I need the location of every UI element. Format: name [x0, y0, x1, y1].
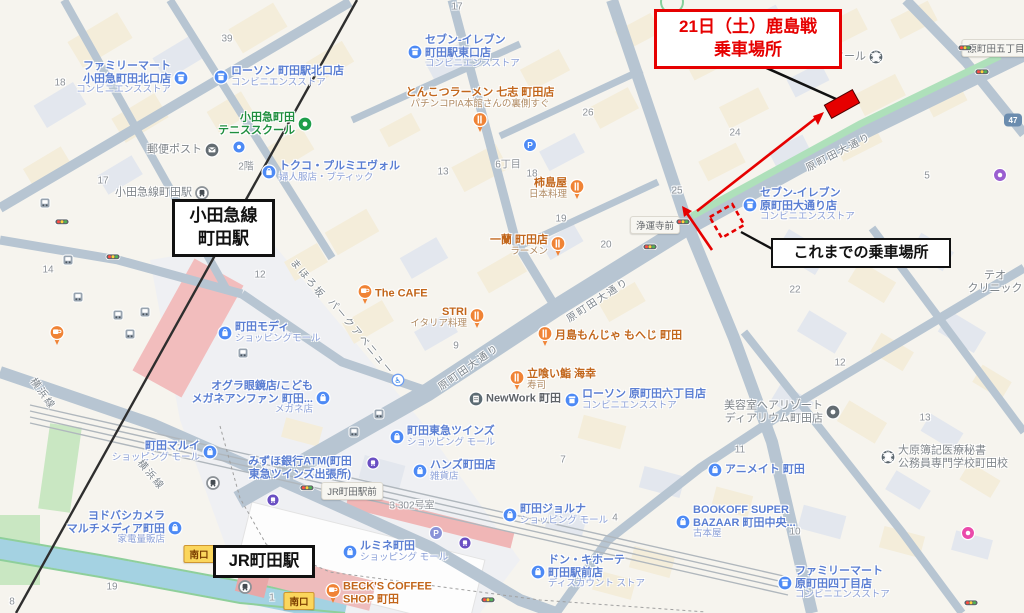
- shopping-icon: [202, 444, 218, 460]
- poi-animate-machida[interactable]: アニメイト 町田: [725, 464, 805, 477]
- poi-seveneleven-haramachida[interactable]: セブン-イレブン原町田大通り店コンビニエンスストア: [760, 187, 855, 223]
- svg-text:文: 文: [884, 452, 893, 462]
- block-number: 4: [612, 513, 618, 524]
- convenience-store-icon: [564, 392, 580, 408]
- convenience-store-icon: [213, 69, 229, 85]
- poi-mizuho-atm[interactable]: みずほ銀行ATM(町田東急ツインズ出張所): [248, 455, 352, 480]
- convenience-store-icon: [407, 44, 423, 60]
- traffic-light-icon: [643, 243, 658, 251]
- block-number: 19: [555, 214, 566, 225]
- traffic-light-icon: [106, 253, 121, 261]
- svg-text:P: P: [527, 140, 533, 150]
- poi-familymart-haramachida4[interactable]: ファミリーマート原町田四丁目店コンビニエンスストア: [795, 565, 890, 601]
- poi-machida-modi[interactable]: 町田モディショッピングモール: [235, 321, 321, 345]
- svg-text:47: 47: [1009, 116, 1018, 125]
- school-icon: 文: [868, 49, 884, 65]
- convenience-store-icon: [742, 197, 758, 213]
- odakyu-line1: 小田急線: [175, 205, 272, 228]
- new-pickup-callout: 21日（土）鹿島戦 乗車場所: [654, 9, 842, 69]
- poi-machida-marui[interactable]: 町田マルイショッピング モール: [112, 440, 200, 464]
- cafe-pin-icon: [324, 582, 342, 604]
- food-pin-icon: [508, 369, 526, 391]
- post-icon: [204, 142, 220, 158]
- shopping-icon: [342, 544, 358, 560]
- parking-icon: P: [523, 138, 538, 153]
- poi-tokyu-twins[interactable]: 町田東急ツインズショッピング モール: [407, 425, 495, 449]
- poi-familymart-odakyu-kitaguchi[interactable]: ファミリーマート小田急町田北口店コンビニエンスストア: [76, 60, 171, 96]
- traffic-light-icon: [964, 599, 979, 607]
- poi-ogura-megane[interactable]: オグラ眼鏡店/こどもメガネアンファン 町田...メガネ店: [192, 380, 313, 416]
- cafe-pin-icon: [356, 283, 374, 305]
- poi-tokuko-premier-vol[interactable]: トクコ・プルミエヴォル婦人服店・ブティック: [279, 160, 400, 184]
- block-number: 19: [106, 582, 117, 593]
- shopping-icon: [261, 164, 277, 180]
- cafe-pin-icon: [48, 324, 66, 346]
- block-number: 39: [221, 34, 232, 45]
- shopping-icon: [389, 429, 405, 445]
- shopping-icon: [530, 564, 546, 580]
- wheelchair-access-icon: ♿: [391, 373, 405, 387]
- bus-stop-icon: [125, 329, 136, 340]
- railway-line-icon: [366, 456, 380, 470]
- street-name-label: パークアベニュー: [325, 294, 398, 377]
- street-name-label: 横浜線: [28, 374, 61, 412]
- bus-stop-icon: [140, 307, 151, 318]
- new-pickup-line2: 乗車場所: [659, 39, 837, 62]
- road-label-chip: 浄運寺前: [630, 216, 680, 234]
- block-number: 1: [269, 593, 275, 604]
- map[interactable]: ファミリーマート小田急町田北口店コンビニエンスストアローソン 町田駅北口店コンビ…: [0, 0, 1024, 613]
- poi-tonkotsu-nanashi[interactable]: とんこつラーメン 七志 町田店パチンコPIA本館さんの裏側すぐ: [406, 86, 555, 110]
- poi-lumine-machida[interactable]: ルミネ町田ショッピング モール: [360, 540, 448, 564]
- new-pickup-line1: 21日（土）鹿島戦: [659, 16, 837, 39]
- poi-newwork-machida[interactable]: NewWork 町田: [486, 393, 561, 406]
- shopping-icon: [217, 325, 233, 341]
- convenience-store-icon: [777, 575, 793, 591]
- shopping-icon: [502, 507, 518, 523]
- odakyu-line2: 町田駅: [175, 228, 272, 251]
- poi-teo-clinic[interactable]: テオクリニック: [968, 269, 1023, 294]
- poi-seveneleven-higashiguchi[interactable]: セブン-イレブン町田駅東口店コンビニエンスストア: [425, 34, 520, 70]
- shopping-icon: [315, 390, 331, 406]
- poi-don-quijote[interactable]: ドン・キホーテ町田駅前店ディスカウント ストア: [548, 554, 645, 590]
- poi-kakishimaya[interactable]: 柿島屋日本料理: [529, 177, 567, 201]
- school-icon: 文: [880, 449, 896, 465]
- bus-stop-icon: [374, 409, 385, 420]
- svg-text:♿: ♿: [394, 376, 401, 385]
- block-number: 10: [789, 527, 800, 538]
- food-pin-icon: [568, 178, 586, 200]
- block-number: 14: [42, 265, 53, 276]
- poi-stri[interactable]: STRIイタリア料理: [410, 306, 467, 330]
- svg-text:文: 文: [872, 52, 881, 62]
- poi-tsukishima-monja-moheji[interactable]: 月島もんじゃ もへじ 町田: [555, 330, 682, 343]
- block-number: 2階: [238, 158, 254, 173]
- block-number: 3 302号室: [389, 497, 434, 512]
- odakyu-station-callout: 小田急線 町田駅: [172, 199, 275, 257]
- railway-line-icon: [458, 536, 472, 550]
- block-number: 8: [9, 597, 15, 608]
- traffic-light-icon: [975, 68, 990, 76]
- block-number: 20: [600, 240, 611, 251]
- bus-stop-icon: [349, 427, 360, 438]
- street-name-label: まほろ坂: [288, 255, 330, 301]
- poi-layer: ファミリーマート小田急町田北口店コンビニエンスストアローソン 町田駅北口店コンビ…: [0, 0, 1024, 613]
- poi-machida-jorna[interactable]: 町田ジョルナショッピング モール: [520, 503, 608, 527]
- poi-lawson-haramachida6[interactable]: ローソン 原町田六丁目店コンビニエンスストア: [582, 388, 706, 412]
- shopping-icon: [707, 462, 723, 478]
- station-icon: [238, 580, 253, 595]
- scissors-icon: [825, 404, 841, 420]
- bus-stop-icon: [63, 255, 74, 266]
- traffic-light-icon: [55, 218, 70, 226]
- jr-station-callout: JR町田駅: [213, 545, 315, 578]
- food-pin-icon: [468, 307, 486, 329]
- food-pin-icon: [549, 235, 567, 257]
- block-number: 12: [834, 358, 845, 369]
- block-number: 24: [729, 128, 740, 139]
- beauty-shop-icon: [961, 526, 976, 541]
- blue-dot-icon: [232, 140, 246, 154]
- bus-stop-icon: [40, 198, 51, 209]
- block-number: 22: [789, 285, 800, 296]
- street-name-label: 原町田大通り: [803, 128, 874, 174]
- block-number: 13: [919, 413, 930, 424]
- convenience-store-icon: [173, 70, 189, 86]
- poi-odakyu-line-machida-sta[interactable]: 小田急線町田駅: [115, 187, 192, 200]
- block-number: 11: [735, 445, 745, 456]
- street-name-label: 原町田大通り: [563, 273, 632, 325]
- block-number: 6丁目: [495, 156, 521, 171]
- block-number: 5: [924, 171, 930, 182]
- poi-yodobashi-camera[interactable]: ヨドバシカメラマルチメディア町田家電量販店: [67, 510, 165, 546]
- bus-stop-icon: [238, 348, 249, 359]
- traffic-light-icon: [300, 484, 315, 492]
- svg-text:P: P: [433, 528, 439, 538]
- bus-stop-icon: [113, 310, 124, 321]
- poi-lawson-kitaguchi[interactable]: ローソン 町田駅北口店コンビニエンスストア: [231, 65, 344, 89]
- food-pin-icon: [471, 111, 489, 133]
- block-number: 17: [97, 176, 108, 187]
- shopping-icon: [167, 520, 183, 536]
- block-number: 18: [54, 78, 65, 89]
- poi-odakyu-tennis-school[interactable]: 小田急町田テニススクール: [218, 111, 295, 136]
- block-number: 17: [451, 2, 462, 13]
- route-shield-47: 47: [1004, 113, 1023, 127]
- block-number: 9: [453, 341, 459, 352]
- food-pin-icon: [536, 325, 554, 347]
- block-number: 25: [671, 186, 682, 197]
- poi-hair-resort-diarium[interactable]: 美容室ヘアリゾートディアリウム町田店: [724, 399, 823, 424]
- poi-ohara-gakko[interactable]: 大原簿記医療秘書公務員専門学校町田校: [898, 444, 1008, 469]
- poi-hands-machida[interactable]: ハンズ町田店雑貨店: [430, 459, 496, 483]
- poi-the-cafe[interactable]: The CAFE: [375, 288, 428, 301]
- shopping-icon: [675, 514, 691, 530]
- street-name-label: 原町田大通り: [434, 339, 502, 393]
- poi-becks-coffee[interactable]: BECK'S COFFEESHOP 町田: [343, 580, 432, 605]
- shop-icon: [993, 168, 1008, 183]
- poi-ichiran-machida[interactable]: 一蘭 町田店ラーメン: [490, 234, 548, 258]
- parking-icon: P: [429, 526, 444, 541]
- block-number: 12: [254, 270, 265, 281]
- poi-post-box[interactable]: 郵便ポスト: [147, 144, 202, 157]
- traffic-light-icon: [958, 44, 973, 52]
- station-exit-label: 南口: [283, 592, 314, 610]
- block-number: 26: [582, 108, 593, 119]
- previous-pickup-callout: これまでの乗車場所: [771, 238, 951, 268]
- block-number: 18: [526, 169, 537, 180]
- shopping-icon: [412, 463, 428, 479]
- block-number: 7: [560, 455, 566, 466]
- poi-bookoff-super-bazaar[interactable]: BOOKOFF SUPERBAZAAR 町田中央...古本屋: [693, 504, 796, 540]
- office-icon: [468, 391, 484, 407]
- station-icon: [206, 476, 221, 491]
- road-label-chip: JR町田駅前: [321, 482, 383, 500]
- station-exit-label: 南口: [183, 545, 214, 563]
- traffic-light-icon: [676, 218, 691, 226]
- tennis-icon: [297, 116, 313, 132]
- railway-line-icon: [266, 493, 280, 507]
- bus-stop-icon: [73, 292, 84, 303]
- block-number: 13: [437, 167, 448, 178]
- traffic-light-icon: [481, 596, 496, 604]
